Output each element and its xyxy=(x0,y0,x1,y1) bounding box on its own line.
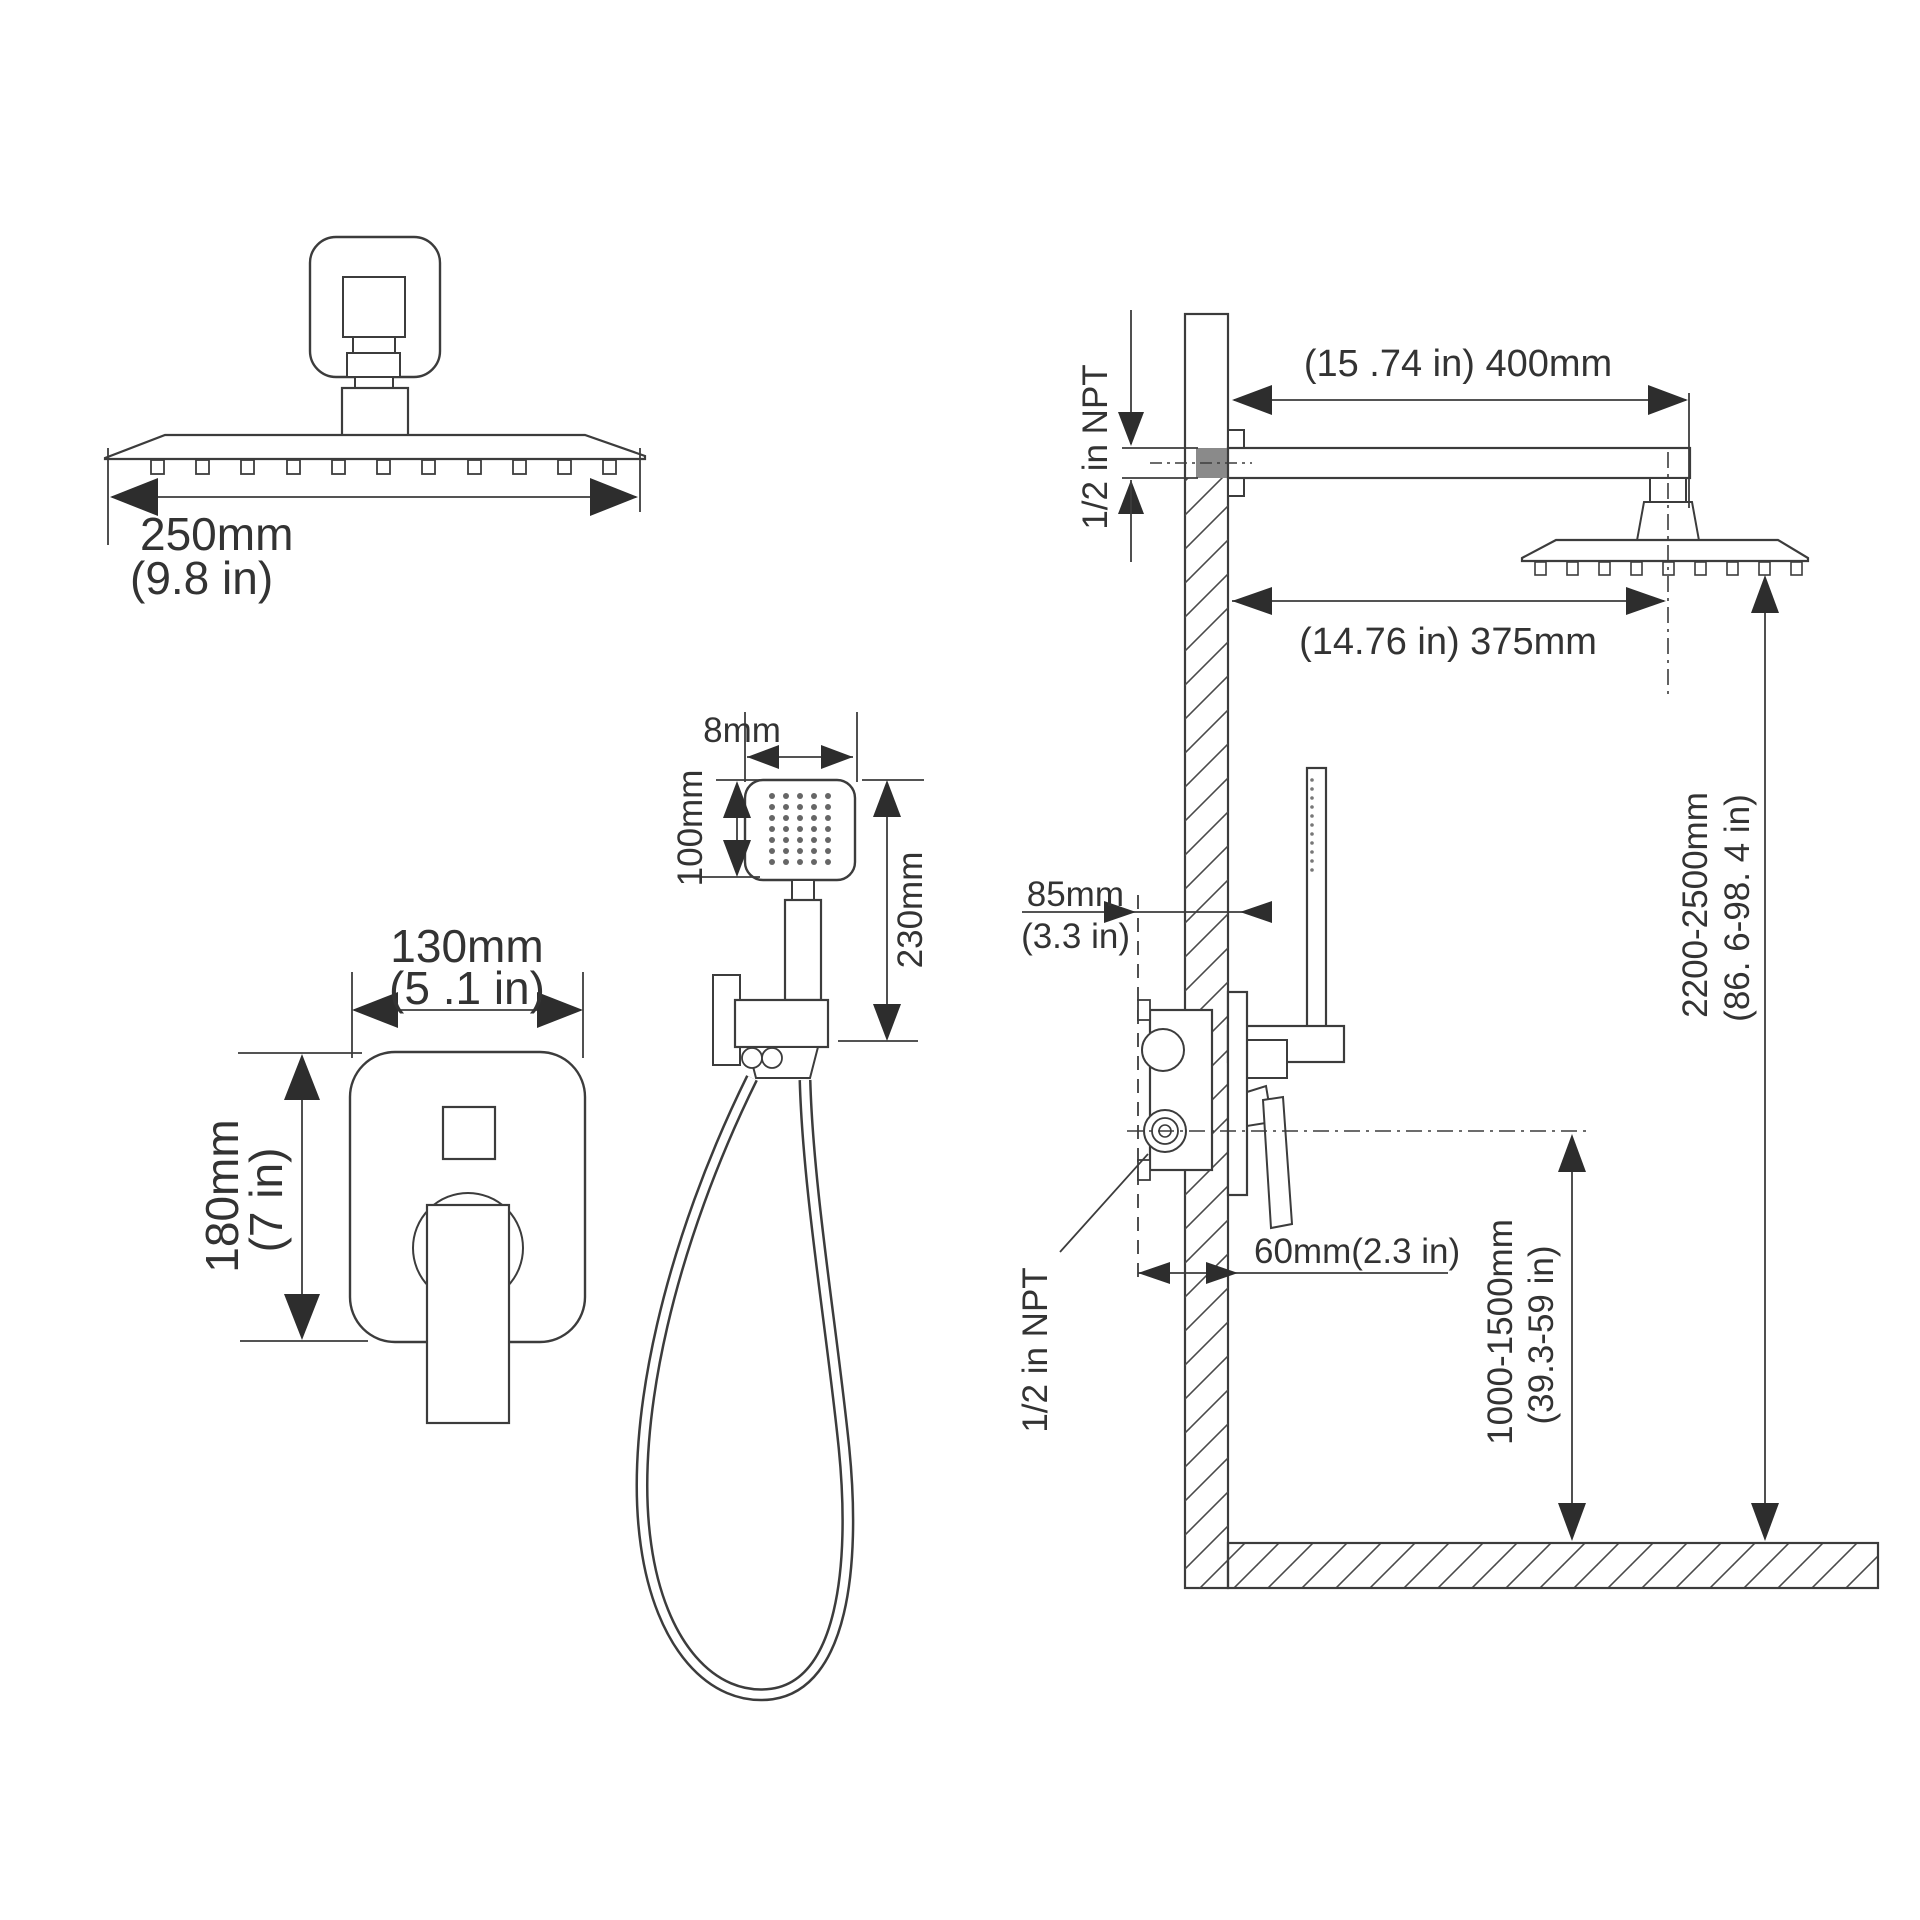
valve-trim-front-view: 130mm (5 .1 in) 180mm (7 in) xyxy=(196,920,585,1423)
dim-arm-thread: 1/2 in NPT xyxy=(1076,310,1198,562)
rain-head-nozzles xyxy=(151,460,616,474)
mount-bracket-slot xyxy=(343,277,405,337)
hand-shower-neck xyxy=(792,880,814,900)
rain-shower-head-side-view: 250mm (9.8 in) xyxy=(105,237,645,604)
installation-side-view: (15 .74 in) 400mm 1/2 in NPT (14.76 in) … xyxy=(1016,310,1878,1588)
hand-shower-side xyxy=(1307,768,1326,1028)
valve-stub-top xyxy=(1138,1000,1150,1020)
rain-head-plate xyxy=(105,435,645,459)
shower-hose xyxy=(642,1078,848,1695)
shower-arm xyxy=(1228,448,1690,478)
dim-arm-length: (15 .74 in) 400mm xyxy=(1232,343,1689,508)
floor-section xyxy=(1228,1543,1878,1588)
dim-hand-head-width: 8mm xyxy=(703,711,857,782)
rain-head-plate-side xyxy=(1522,540,1808,561)
dim-400mm-label: (15 .74 in) 400mm xyxy=(1304,343,1612,385)
dim-60mm-label: 60mm(2.3 in) xyxy=(1254,1232,1460,1271)
hose-swivel-right xyxy=(762,1048,782,1068)
valve-thread-leader xyxy=(1060,1154,1148,1252)
dim-valve-thread: 1/2 in NPT xyxy=(1016,1154,1148,1433)
dim-valve-width: 130mm (5 .1 in) xyxy=(352,920,583,1058)
handle-lever-side xyxy=(1263,1097,1292,1228)
valve-lever-handle xyxy=(427,1205,509,1423)
hand-shower-handle xyxy=(785,900,821,1000)
dim-9-8in-label: (9.8 in) xyxy=(130,552,273,604)
dim-230mm-label: 230mm xyxy=(891,852,930,969)
dim-5-1in-label: (5 .1 in) xyxy=(389,962,545,1014)
trim-plate-side xyxy=(1228,992,1247,1195)
installation-diagram: 250mm (9.8 in) 130mm (5 .1 in) 180mm (7 xyxy=(0,0,1920,1920)
dim-85mm-label: 85mm xyxy=(1027,875,1124,914)
mount-neck-lower xyxy=(347,353,400,377)
dim-100mm-label: 100mm xyxy=(671,770,710,887)
valve-thread-label: 1/2 in NPT xyxy=(1016,1267,1055,1432)
hose-outlet-elbow xyxy=(1247,1040,1287,1078)
diagram-canvas: 250mm (9.8 in) 130mm (5 .1 in) 180mm (7 xyxy=(0,0,1920,1920)
dim-375mm-label: (14.76 in) 375mm xyxy=(1299,621,1597,663)
hand-shower-holder xyxy=(735,1000,828,1047)
mount-block xyxy=(342,388,408,438)
dim-valve-height: 180mm (7 in) xyxy=(196,1053,368,1341)
dim-1000-1500-label: 1000-1500mm xyxy=(1481,1219,1520,1445)
dim-2200-2500-label: 2200-2500mm xyxy=(1676,792,1715,1018)
dim-rough-in: 85mm (3.3 in) xyxy=(1021,875,1272,956)
dim-7in-label: (7 in) xyxy=(240,1148,292,1253)
diverter-button xyxy=(443,1107,495,1159)
dim-39-59in-label: (39.3-59 in) xyxy=(1522,1246,1561,1425)
hand-shower-front-view: 8mm 100mm 230mm xyxy=(642,711,930,1695)
mount-neck-upper xyxy=(353,337,395,353)
dim-head-height-range: 2200-2500mm (86. 6-98. 4 in) xyxy=(1676,575,1779,1541)
hose-swivel-left xyxy=(742,1048,762,1068)
dim-86-98in-label: (86. 6-98. 4 in) xyxy=(1718,794,1757,1022)
valve-cartridge-circle xyxy=(1142,1029,1184,1071)
dim-8mm-label: 8mm xyxy=(703,711,781,750)
mount-stem xyxy=(355,377,393,388)
dim-3-3in-label: (3.3 in) xyxy=(1021,917,1130,956)
arm-thread-label: 1/2 in NPT xyxy=(1076,364,1115,529)
dim-head-wall-distance: (14.76 in) 375mm xyxy=(1232,587,1666,663)
dim-valve-height-range: 1000-1500mm (39.3-59 in) xyxy=(1481,1134,1586,1541)
